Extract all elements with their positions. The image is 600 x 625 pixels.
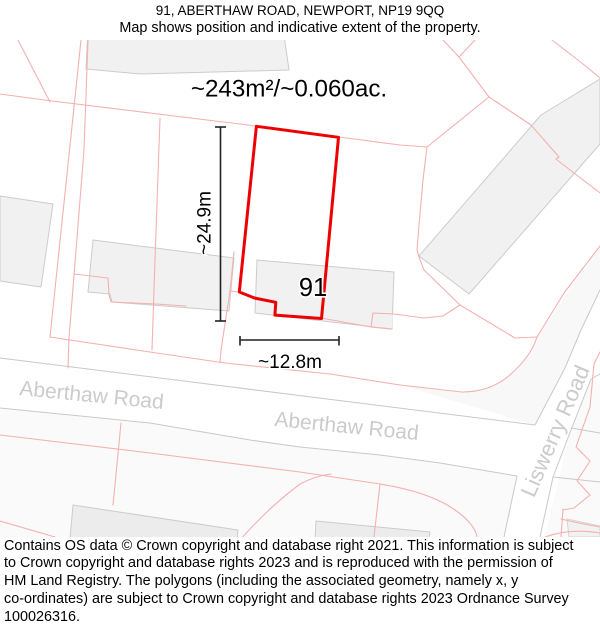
svg-text:~12.8m: ~12.8m	[258, 352, 322, 373]
svg-text:~24.9m: ~24.9m	[195, 191, 216, 255]
svg-text:Aberthaw Road: Aberthaw Road	[273, 408, 419, 445]
svg-text:Aberthaw Road: Aberthaw Road	[18, 377, 164, 414]
svg-text:~243m²/~0.060ac.: ~243m²/~0.060ac.	[191, 76, 387, 103]
svg-text:91: 91	[299, 274, 327, 302]
